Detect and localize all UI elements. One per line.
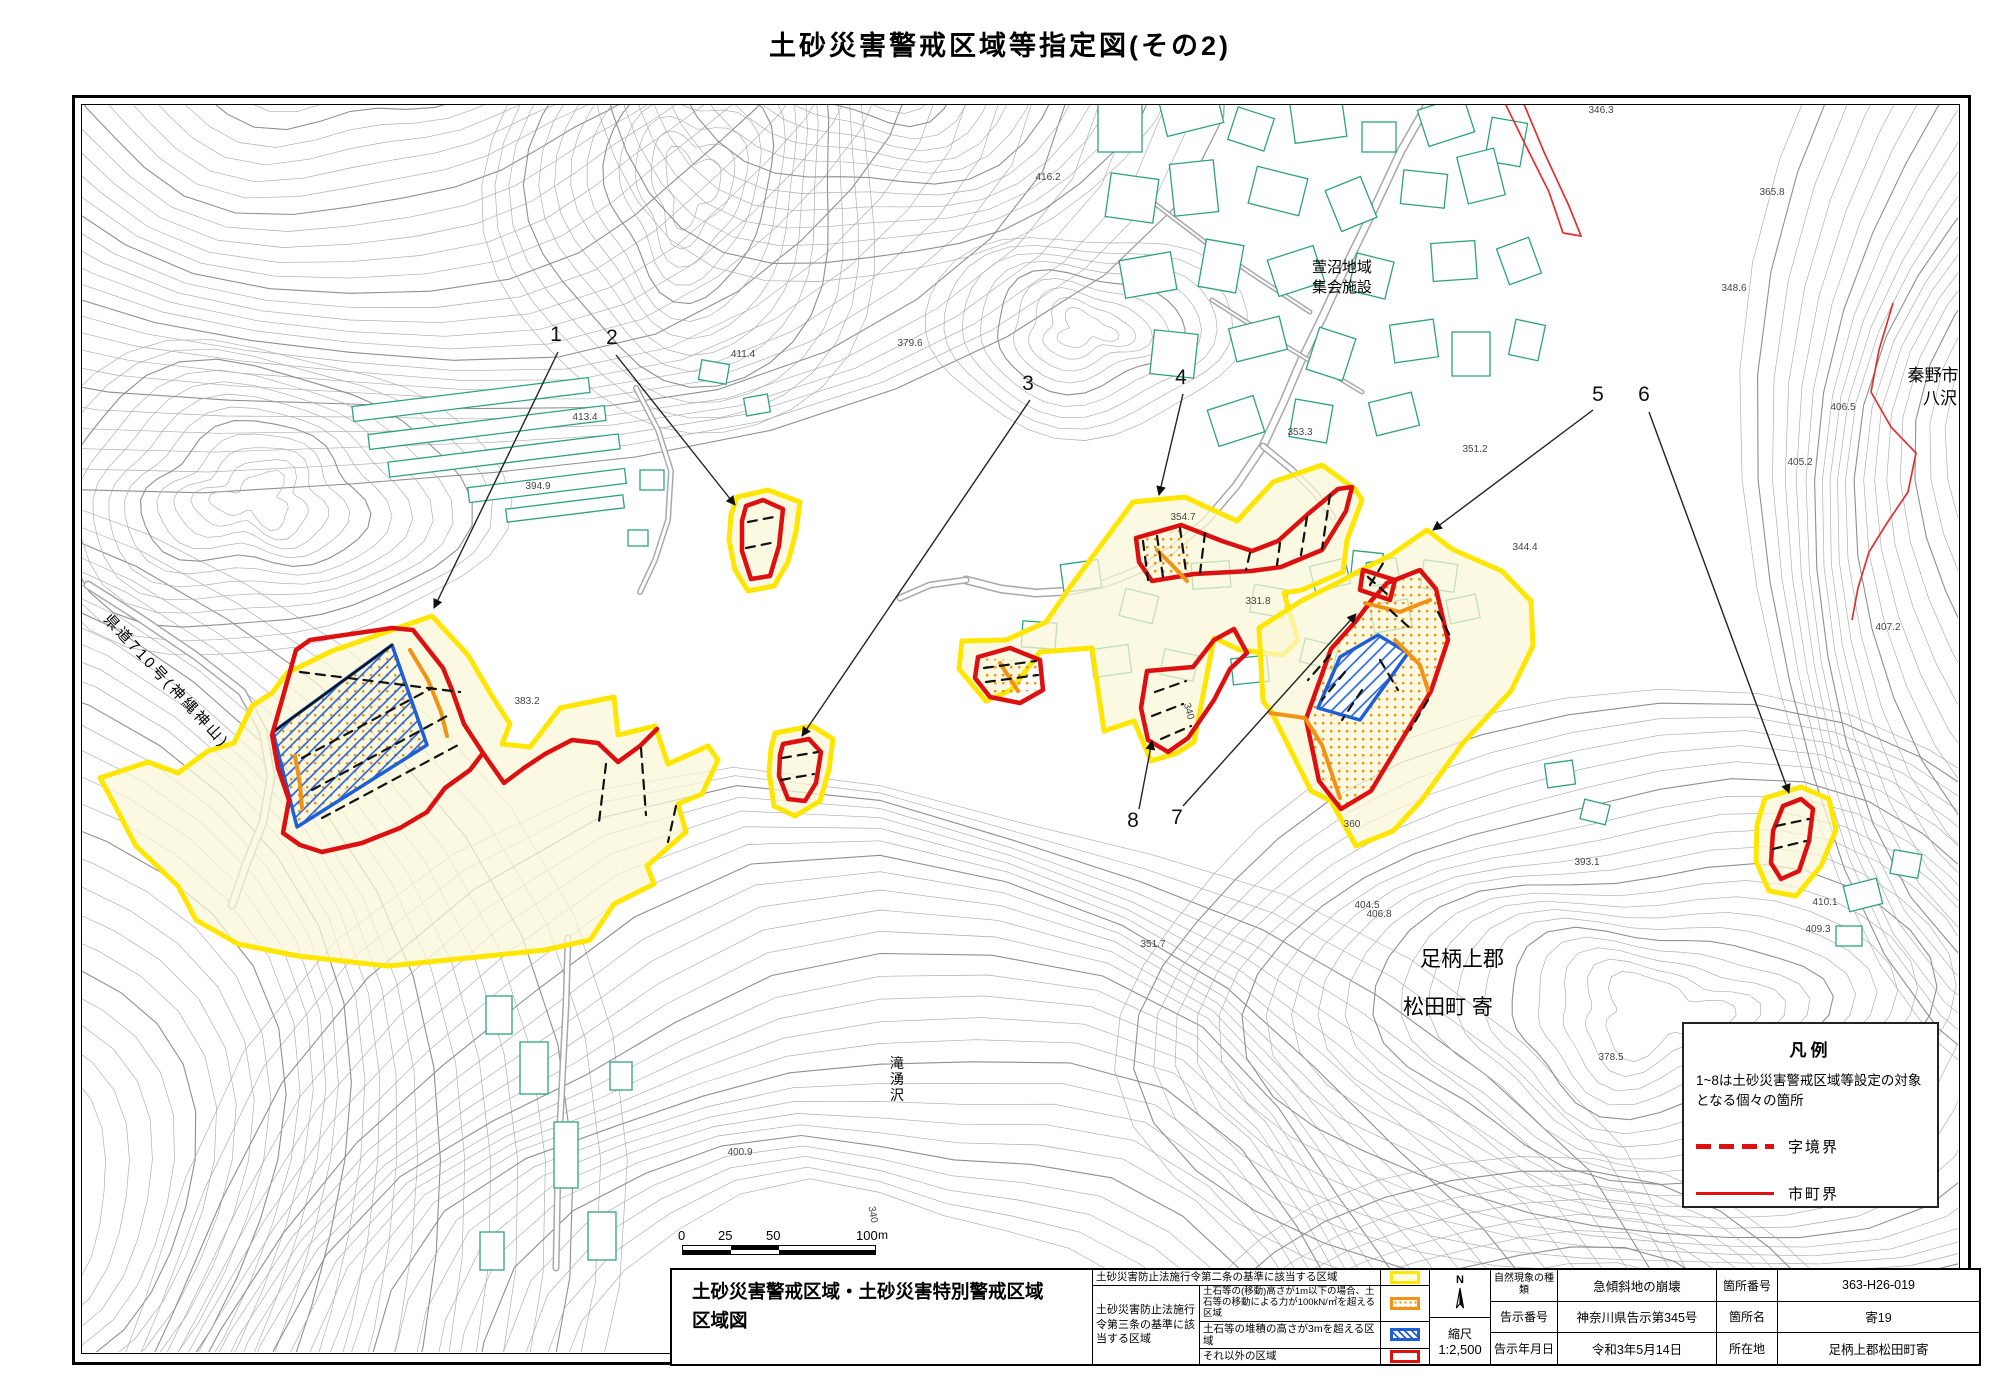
notice-number-label: 告示番号 bbox=[1491, 1302, 1557, 1333]
contour-line bbox=[24, 0, 704, 232]
site-number-2: 2 bbox=[606, 326, 618, 349]
elevation-label: 405.2 bbox=[1787, 457, 1812, 468]
contour-line bbox=[0, 940, 174, 1368]
location-value: 足柄上郡松田町寄 bbox=[1778, 1333, 1979, 1364]
building bbox=[640, 470, 664, 490]
contour-line bbox=[539, 12, 819, 372]
building bbox=[1890, 850, 1922, 878]
building bbox=[1400, 170, 1447, 208]
place-label: 滝湧沢 bbox=[890, 1055, 904, 1103]
scale-bar: 0 25 50 100 m bbox=[680, 1228, 890, 1262]
scale-label: 縮尺 bbox=[1448, 1325, 1472, 1342]
building bbox=[1207, 396, 1264, 447]
elevation-label: 400.9 bbox=[727, 1147, 752, 1158]
contour-line bbox=[588, 0, 1182, 282]
leader-line-5 bbox=[1433, 410, 1593, 530]
contour-line bbox=[0, 1034, 36, 1279]
building bbox=[1509, 319, 1546, 360]
building bbox=[1390, 319, 1439, 363]
contour-line bbox=[0, 0, 864, 336]
building bbox=[1836, 926, 1862, 946]
contour-line bbox=[787, 0, 933, 100]
contour-line bbox=[1845, 45, 2000, 912]
contour-line bbox=[0, 0, 1132, 433]
elevation-label: 353.3 bbox=[1287, 427, 1312, 438]
building bbox=[1497, 237, 1542, 284]
place-label: 秦野市 bbox=[1908, 366, 1959, 385]
place-label: 八沢 bbox=[1923, 389, 1957, 408]
contour-line bbox=[0, 0, 818, 308]
building bbox=[1119, 252, 1177, 298]
contour-line bbox=[0, 0, 751, 262]
scale-tick-50: 50 bbox=[766, 1228, 780, 1243]
building bbox=[1248, 166, 1308, 215]
building bbox=[628, 530, 648, 546]
legend-solid-label: 市町界 bbox=[1788, 1183, 1839, 1204]
nature-type-label: 自然現象の種類 bbox=[1491, 1270, 1557, 1301]
legend-dashed-line-sample bbox=[1696, 1144, 1774, 1149]
site-number-5: 5 bbox=[1592, 383, 1604, 406]
building bbox=[1098, 96, 1142, 152]
building bbox=[1369, 392, 1420, 436]
scale-cell: 縮尺 1:2,500 bbox=[1430, 1318, 1490, 1365]
contour-line bbox=[495, 0, 859, 418]
zone-row-red-label: それ以外の区域 bbox=[1200, 1349, 1380, 1364]
legend-box: 凡例 1~8は土砂災害警戒区域等設定の対象となる個々の箇所 字境界 市町界 bbox=[1682, 1022, 1939, 1208]
legend-note: 1~8は土砂災害警戒区域等設定の対象となる個々の箇所 bbox=[1696, 1071, 1925, 1110]
elevation-label: 410.1 bbox=[1812, 897, 1837, 908]
orange-zone-swatch bbox=[1390, 1297, 1420, 1310]
contour-line bbox=[200, 0, 516, 112]
contour-line bbox=[157, 434, 350, 558]
elevation-label: 344.4 bbox=[1512, 542, 1537, 553]
contour-line bbox=[1915, 178, 2000, 774]
place-label: 萱沼地域 bbox=[1312, 259, 1372, 276]
elevation-label: 394.9 bbox=[525, 481, 550, 492]
site-number-3: 3 bbox=[1022, 372, 1034, 395]
contour-line bbox=[106, 0, 626, 182]
contour-line bbox=[1043, 297, 1136, 359]
site-number-value: 363-H26-019 bbox=[1778, 1270, 1979, 1301]
contour-line bbox=[0, 878, 236, 1400]
building bbox=[1417, 96, 1474, 147]
contour-line bbox=[0, 0, 1002, 390]
building bbox=[486, 996, 512, 1034]
site-name-value: 寄19 bbox=[1778, 1302, 1979, 1333]
building bbox=[520, 1042, 548, 1094]
contour-line bbox=[1416, 1373, 1641, 1400]
notice-number-value: 神奈川県告示第345号 bbox=[1558, 1302, 1716, 1333]
map-title-line2: 区域図 bbox=[692, 1307, 1092, 1336]
contour-line bbox=[0, 0, 1194, 472]
elevation-label: 365.8 bbox=[1759, 187, 1784, 198]
notice-date-value: 令和3年5月14日 bbox=[1558, 1333, 1716, 1364]
contour-line bbox=[702, 0, 1023, 162]
building bbox=[554, 1122, 578, 1188]
contour-line bbox=[0, 0, 728, 248]
contour-line bbox=[0, 0, 971, 380]
contour-line bbox=[672, 0, 1063, 184]
scale-bar-graphic bbox=[682, 1245, 876, 1255]
contour-line bbox=[177, 0, 544, 130]
contour-line bbox=[125, 407, 392, 575]
contour-line bbox=[0, 1050, 15, 1261]
site-number-4: 4 bbox=[1175, 366, 1187, 389]
contour-line bbox=[768, 0, 948, 114]
contour-line bbox=[687, 0, 1043, 173]
scale-value: 1:2,500 bbox=[1438, 1342, 1481, 1357]
municipal-boundary-line bbox=[1521, 97, 1581, 236]
contour-line bbox=[1961, 225, 2000, 723]
contour-line bbox=[130, 0, 598, 165]
elevation-label: 351.7 bbox=[1140, 939, 1165, 950]
elevation-label: 404.5 bbox=[1354, 900, 1379, 911]
elevation-label: 383.2 bbox=[514, 696, 539, 707]
swatch-yellow-cell bbox=[1381, 1270, 1429, 1285]
place-label: 集会施設 bbox=[1312, 279, 1372, 296]
notice-date-label: 告示年月日 bbox=[1491, 1333, 1557, 1364]
contour-line bbox=[0, 1018, 57, 1295]
yellow-zone-swatch bbox=[1390, 1271, 1420, 1284]
elevation-label: 378.5 bbox=[1598, 1052, 1623, 1063]
building bbox=[1105, 173, 1159, 223]
scale-unit: m bbox=[878, 1228, 888, 1242]
leader-line-4 bbox=[1159, 394, 1183, 495]
scale-tick-25: 25 bbox=[718, 1228, 732, 1243]
building bbox=[610, 1062, 632, 1090]
contour-line bbox=[658, 0, 1084, 195]
building bbox=[506, 495, 625, 522]
contour-line bbox=[208, 471, 288, 531]
contour-line bbox=[81, 0, 653, 198]
building bbox=[1228, 107, 1275, 151]
elevation-label: 407.2 bbox=[1875, 622, 1900, 633]
blue-zone-swatch bbox=[1390, 1328, 1420, 1341]
building bbox=[1362, 122, 1396, 152]
contour-line bbox=[0, 1002, 81, 1309]
zone-row-blue-label: 土石等の堆積の高さが3mを超える区域 bbox=[1200, 1322, 1380, 1348]
building bbox=[1843, 878, 1882, 911]
site-name-label: 箇所名 bbox=[1717, 1302, 1777, 1333]
contour-line bbox=[0, 0, 941, 371]
swatch-blue-cell bbox=[1381, 1322, 1429, 1348]
nature-type-value: 急傾斜地の崩壊 bbox=[1558, 1270, 1716, 1301]
building bbox=[1169, 160, 1218, 216]
contour-line bbox=[53, 0, 679, 215]
building bbox=[1158, 86, 1223, 137]
place-label: 松田町 寄 bbox=[1403, 996, 1493, 1019]
building bbox=[1150, 330, 1198, 378]
contour-line bbox=[619, 102, 761, 286]
contour-line bbox=[1785, 0, 2000, 1082]
contour-line bbox=[666, 146, 721, 230]
building bbox=[480, 1232, 504, 1270]
contour-line bbox=[0, 0, 888, 349]
page: 土砂災害警戒区域等指定図(その2) 12345678416.2411.4413.… bbox=[0, 0, 2000, 1400]
elevation-label: 416.2 bbox=[1035, 172, 1060, 183]
building bbox=[1580, 799, 1610, 825]
contour-line bbox=[154, 0, 572, 147]
north-arrow-icon bbox=[1451, 1286, 1469, 1312]
compass-cell: N bbox=[1430, 1270, 1490, 1317]
elevation-label: 360 bbox=[1344, 819, 1361, 830]
legend-solid-line-sample bbox=[1696, 1192, 1774, 1195]
zone1-yellow-area bbox=[100, 616, 718, 966]
site-number-label: 箇所番号 bbox=[1717, 1270, 1777, 1301]
contour-line bbox=[223, 0, 487, 95]
contour-line bbox=[1393, 1363, 1660, 1400]
legend-title: 凡例 bbox=[1696, 1036, 1925, 1061]
contour-line bbox=[523, 0, 828, 387]
red-zone-swatch bbox=[1390, 1350, 1420, 1363]
law3-row-label: 土砂災害防止法施行令第三条の基準に該当する区域 bbox=[1093, 1286, 1199, 1364]
elevation-label: 379.6 bbox=[897, 338, 922, 349]
elevation-label: 393.1 bbox=[1574, 857, 1599, 868]
compass-north-label: N bbox=[1456, 1274, 1464, 1286]
elevation-label: 346.3 bbox=[1588, 105, 1613, 116]
zone-row-orange-label: 土石等の(移動)高さが1m以下の場合、土石等の移動による力が100kN/㎡を超え… bbox=[1200, 1286, 1380, 1321]
elevation-label: 413.4 bbox=[572, 412, 597, 423]
elevation-label: 354.7 bbox=[1170, 512, 1195, 523]
law2-row-label: 土砂災害防止法施行令第二条の基準に該当する区域 bbox=[1093, 1270, 1380, 1285]
place-label: 足柄上郡 bbox=[1420, 948, 1504, 971]
site-number-1: 1 bbox=[550, 323, 562, 346]
building bbox=[1431, 241, 1478, 282]
contour-line bbox=[824, 0, 905, 70]
map-title-cell: 土砂災害警戒区域・土砂災害特別警戒区域 区域図 bbox=[672, 1270, 1092, 1364]
contour-line bbox=[0, 972, 129, 1338]
zone-legend-table: 土砂災害防止法施行令第二条の基準に該当する区域 土砂災害防止法施行令第三条の基準… bbox=[1093, 1270, 1429, 1364]
contour-line bbox=[806, 0, 919, 85]
location-label: 所在地 bbox=[1717, 1333, 1777, 1364]
scale-tick-100: 100 bbox=[856, 1228, 878, 1243]
building bbox=[744, 394, 771, 416]
site-number-6: 6 bbox=[1638, 383, 1650, 406]
legend-dashed-label: 字境界 bbox=[1788, 1136, 1839, 1157]
elevation-label: 411.4 bbox=[731, 349, 756, 360]
contour-line bbox=[174, 448, 329, 549]
contour-line bbox=[0, 900, 217, 1400]
building bbox=[1452, 332, 1490, 376]
contour-line bbox=[555, 33, 808, 356]
building bbox=[1229, 316, 1288, 362]
contour-line bbox=[0, 987, 106, 1324]
site-number-8: 8 bbox=[1127, 809, 1139, 832]
notice-info-table: 自然現象の種類 急傾斜地の崩壊 箇所番号 363-H26-019 告示番号 神奈… bbox=[1491, 1270, 1979, 1364]
contour-line bbox=[750, 0, 965, 127]
elevation-label: 409.3 bbox=[1805, 924, 1830, 935]
contour-line bbox=[0, 957, 152, 1353]
elevation-label: 348.6 bbox=[1721, 283, 1746, 294]
contour-line bbox=[1945, 210, 2000, 739]
contour-line bbox=[1758, 0, 2000, 1123]
contour-line bbox=[1740, 0, 2000, 1140]
contour-line bbox=[0, 921, 196, 1389]
scale-tick-0: 0 bbox=[678, 1228, 685, 1243]
contour-line bbox=[630, 0, 1123, 228]
building bbox=[1198, 239, 1244, 293]
swatch-red-cell bbox=[1381, 1349, 1429, 1364]
contour-line bbox=[270, 0, 427, 67]
info-table: 土砂災害警戒区域・土砂災害特別警戒区域 区域図 土砂災害防止法施行令第二条の基準… bbox=[670, 1268, 1981, 1366]
contour-line bbox=[733, 0, 983, 139]
site-number-7: 7 bbox=[1171, 806, 1183, 829]
elevation-label: 351.2 bbox=[1462, 444, 1487, 455]
contour-line bbox=[246, 0, 457, 79]
elevation-label: 331.8 bbox=[1245, 596, 1270, 607]
contour-line bbox=[1887, 139, 2000, 815]
building bbox=[698, 360, 729, 385]
contour-line bbox=[1773, 0, 2000, 1103]
contour-line bbox=[1978, 240, 2000, 708]
building bbox=[1544, 760, 1575, 788]
contour-line bbox=[0, 0, 914, 360]
elevation-label: 406.5 bbox=[1830, 402, 1855, 413]
contour-line bbox=[1996, 256, 2000, 692]
elevation-label: 340 bbox=[866, 1205, 880, 1224]
building bbox=[588, 1212, 616, 1260]
building bbox=[1289, 93, 1347, 144]
swatch-orange-cell bbox=[1381, 1286, 1429, 1321]
contour-line bbox=[717, 0, 1002, 151]
contour-line bbox=[0, 0, 1099, 419]
compass-scale-column: N 縮尺 1:2,500 bbox=[1430, 1270, 1490, 1364]
leader-line-6 bbox=[1649, 412, 1789, 793]
contour-line bbox=[1806, 0, 2000, 1036]
map-title-line1: 土砂災害警戒区域・土砂災害特別警戒区域 bbox=[692, 1278, 1092, 1307]
contour-line bbox=[617, 0, 1143, 246]
road-fill bbox=[900, 580, 966, 598]
